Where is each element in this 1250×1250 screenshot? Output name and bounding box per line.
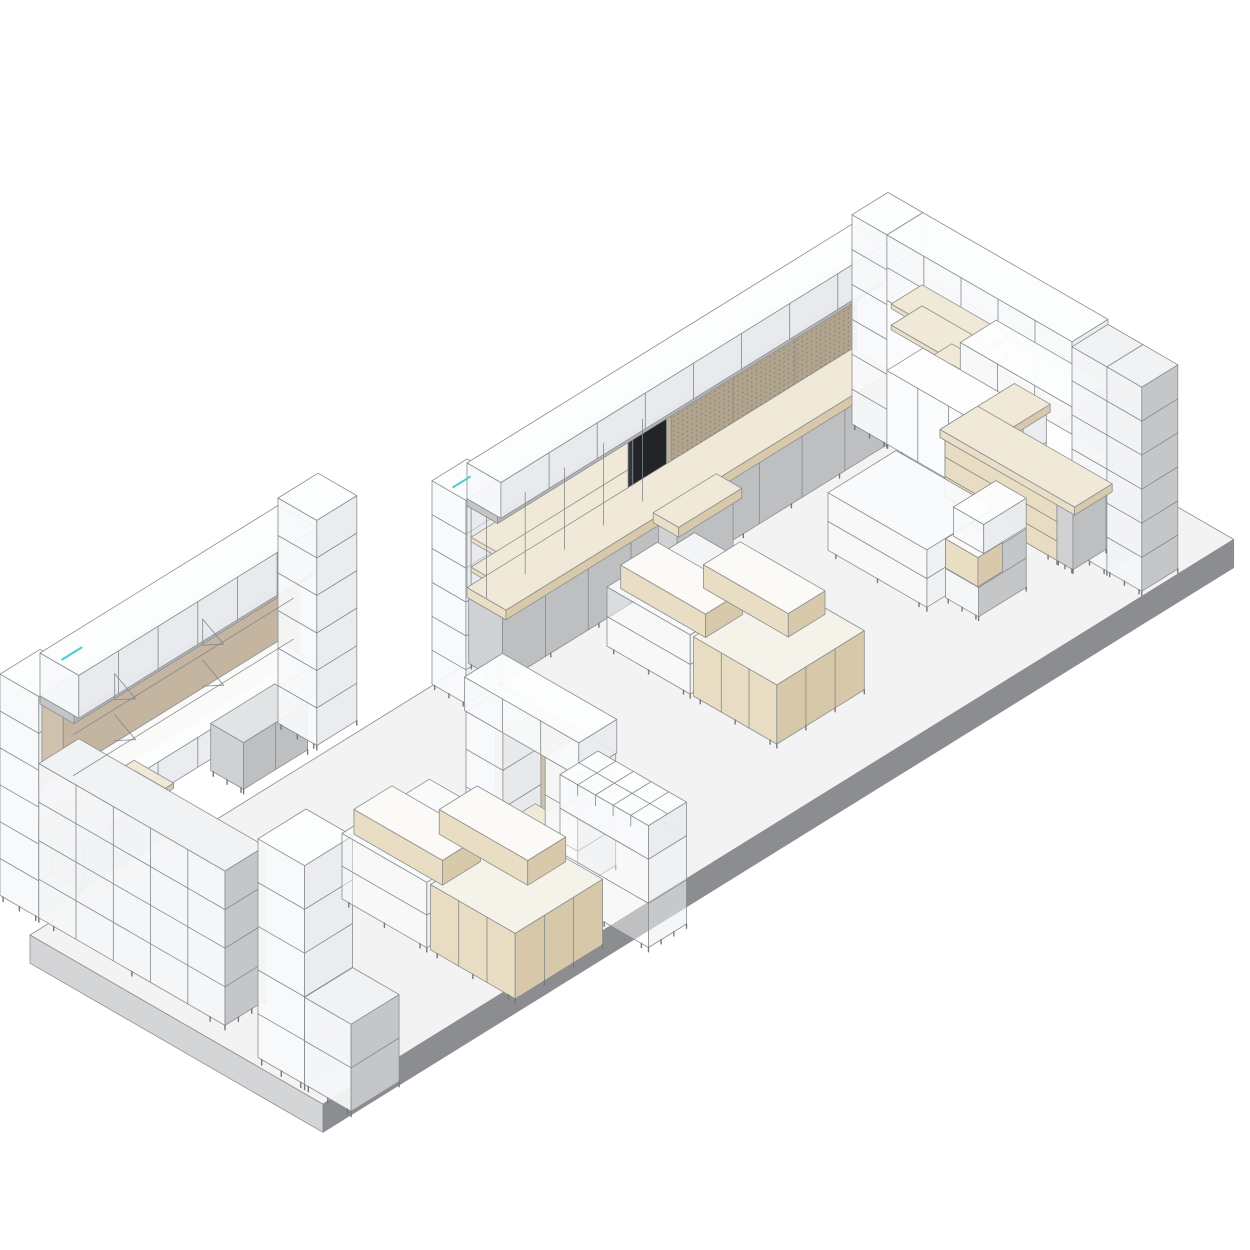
page: { "meta": { "background": "#ffffff" }, "… [0,0,1250,1250]
showroom-isometric-rendering [0,0,1250,1250]
scene-canvas [0,0,1250,1250]
furniture-scene [0,192,1234,1132]
